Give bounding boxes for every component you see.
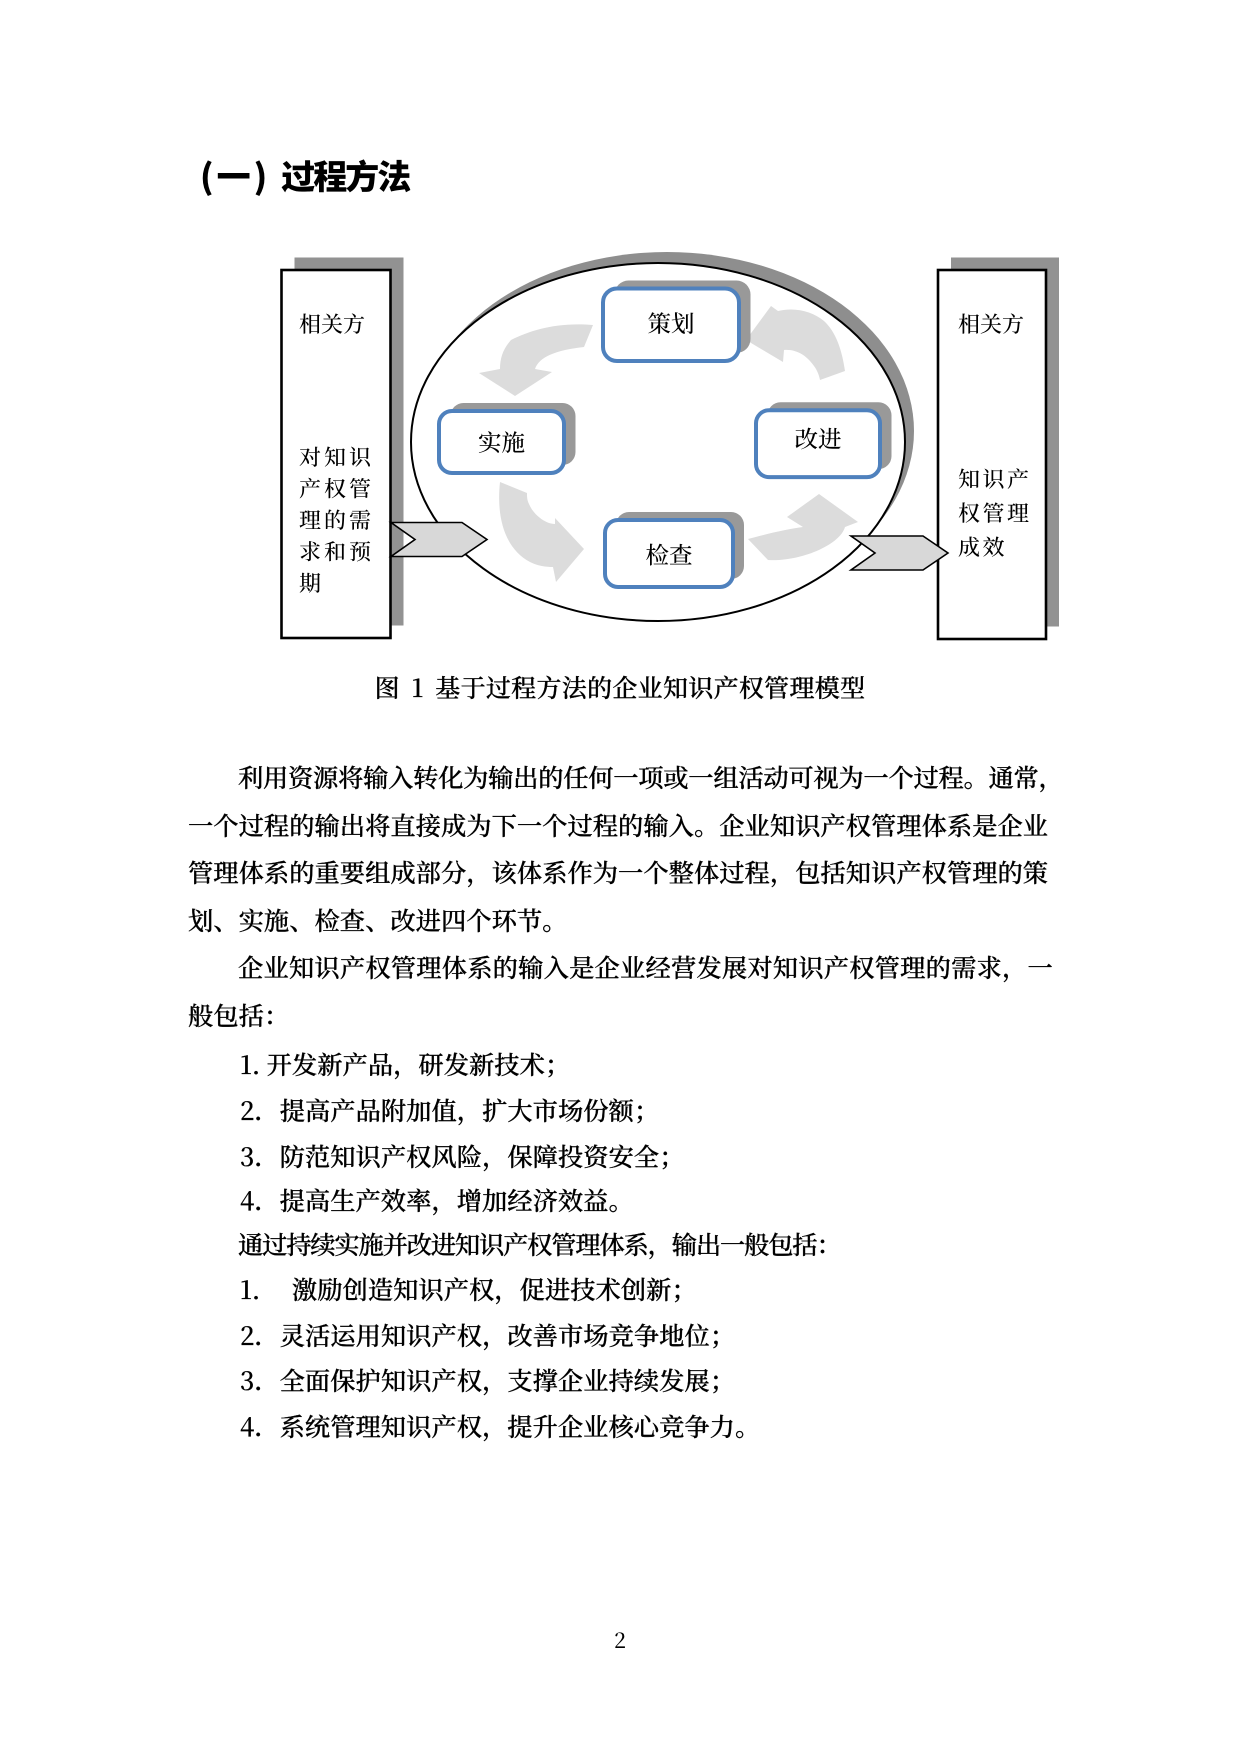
svg-text:理的需: 理的需	[299, 504, 374, 535]
svg-text:策划: 策划	[648, 305, 695, 339]
svg-text:成效: 成效	[958, 531, 1007, 562]
svg-text:产权管: 产权管	[299, 473, 374, 504]
svg-text:求和预: 求和预	[299, 536, 374, 567]
svg-text:实施: 实施	[478, 424, 525, 458]
svg-text:对知识: 对知识	[299, 441, 374, 472]
svg-text:相关方: 相关方	[958, 308, 1024, 339]
svg-text:改进: 改进	[795, 421, 842, 455]
svg-text:权管理: 权管理	[958, 497, 1032, 528]
svg-text:期: 期	[299, 567, 324, 598]
svg-text:知识产: 知识产	[958, 463, 1032, 494]
svg-text:检查: 检查	[646, 537, 693, 571]
svg-text:相关方: 相关方	[299, 308, 365, 339]
